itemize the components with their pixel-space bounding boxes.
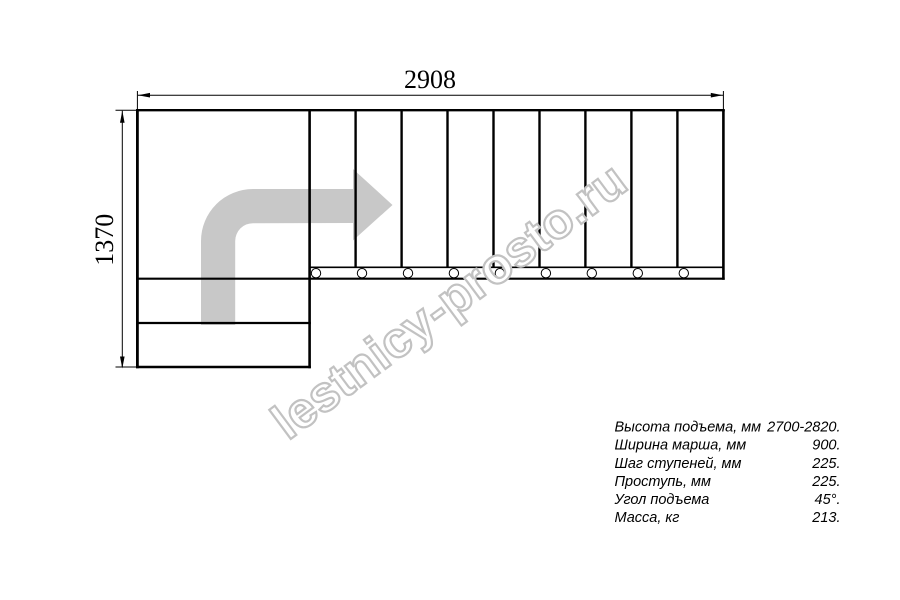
svg-text:Ширина марша, мм: Ширина марша, мм bbox=[615, 438, 747, 454]
svg-text:45°.: 45°. bbox=[815, 492, 841, 508]
svg-text:225.: 225. bbox=[811, 456, 840, 472]
svg-text:213.: 213. bbox=[811, 510, 840, 526]
svg-text:900.: 900. bbox=[812, 438, 840, 454]
svg-text:Шаг ступеней, мм: Шаг ступеней, мм bbox=[615, 456, 742, 472]
svg-text:2908: 2908 bbox=[404, 65, 456, 94]
svg-text:Высота подъема, мм: Высота подъема, мм bbox=[615, 420, 762, 436]
svg-text:Масса, кг: Масса, кг bbox=[615, 510, 680, 526]
svg-text:2700-2820.: 2700-2820. bbox=[766, 420, 840, 436]
svg-text:Проступь, мм: Проступь, мм bbox=[615, 474, 711, 490]
svg-text:1370: 1370 bbox=[90, 214, 119, 266]
svg-text:Угол подъема: Угол подъема bbox=[614, 492, 710, 508]
svg-text:225.: 225. bbox=[811, 474, 840, 490]
